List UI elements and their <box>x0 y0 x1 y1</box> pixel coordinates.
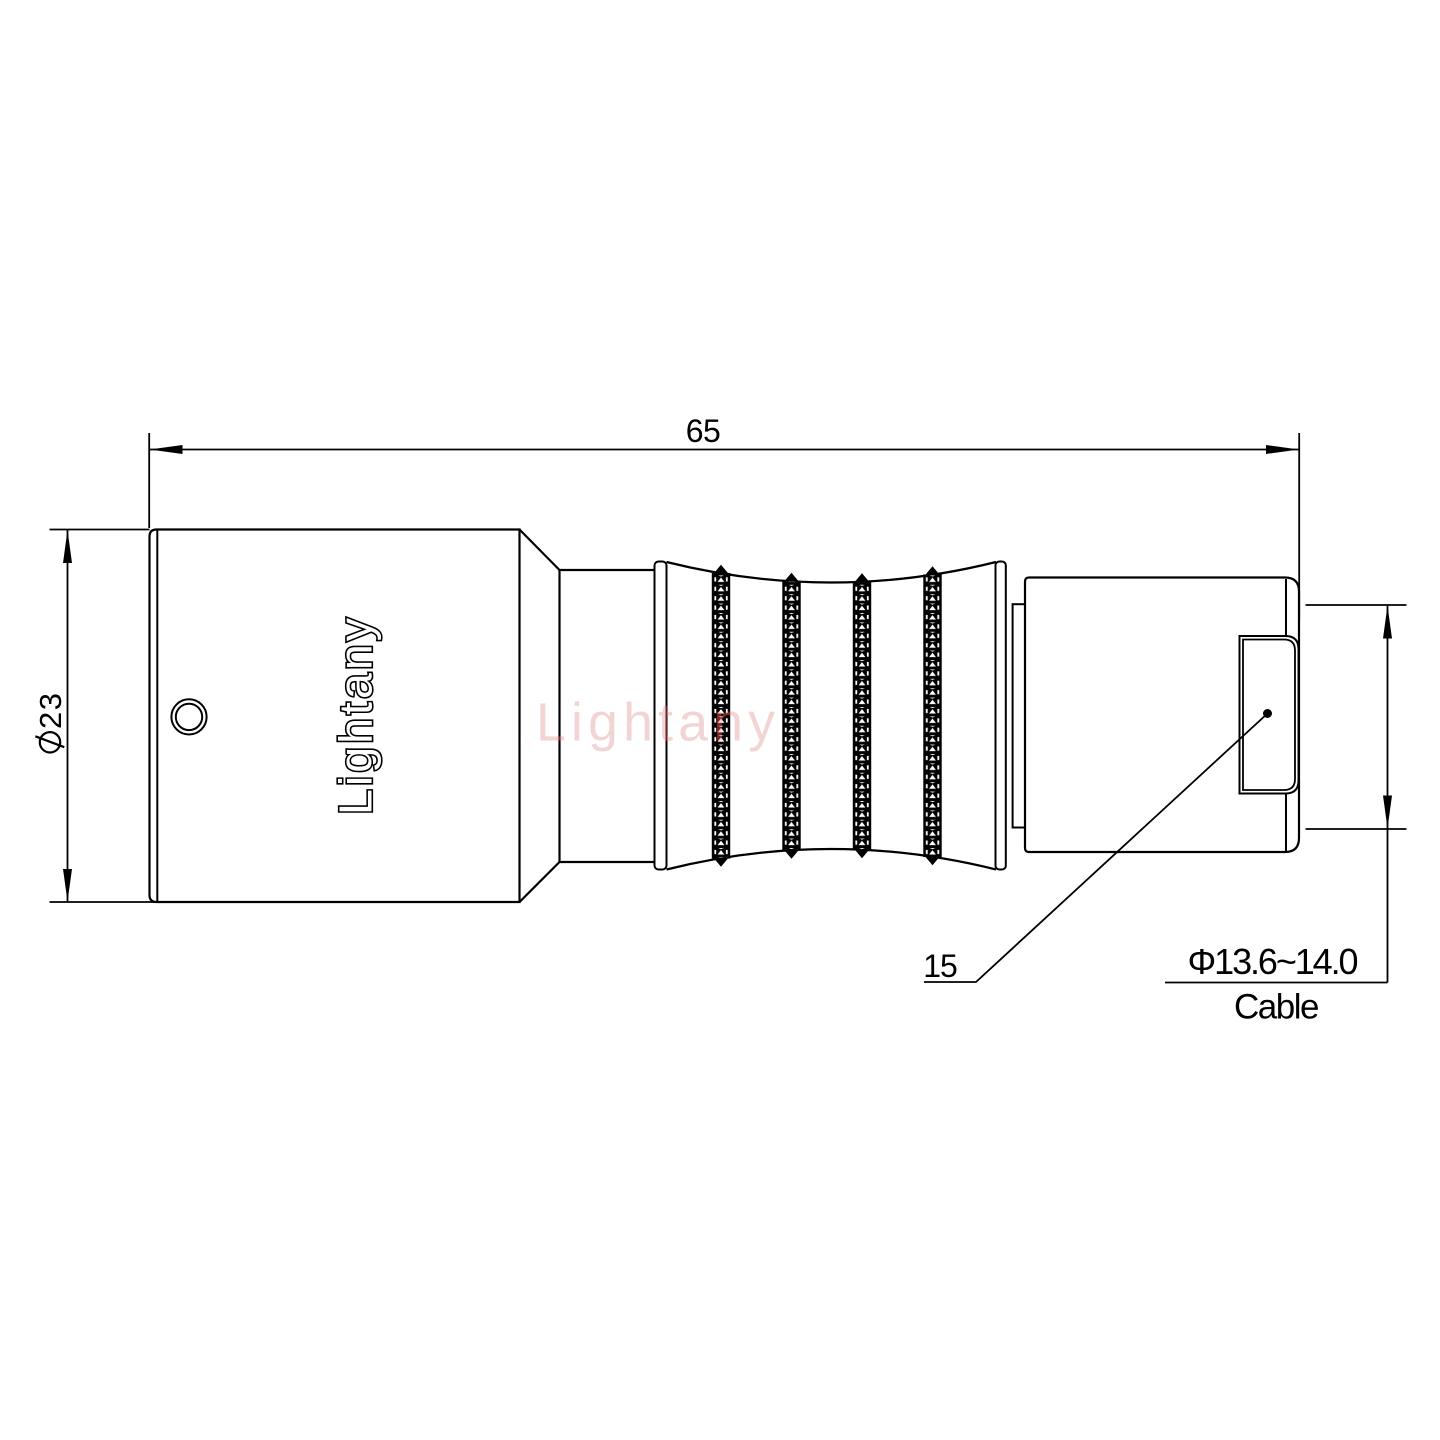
svg-text:Φ13.6~14.0: Φ13.6~14.0 <box>1188 941 1358 982</box>
svg-text:65: 65 <box>686 413 721 449</box>
svg-text:23: 23 <box>33 692 68 729</box>
svg-text:Cable: Cable <box>1234 988 1318 1027</box>
svg-text:15: 15 <box>923 948 957 984</box>
